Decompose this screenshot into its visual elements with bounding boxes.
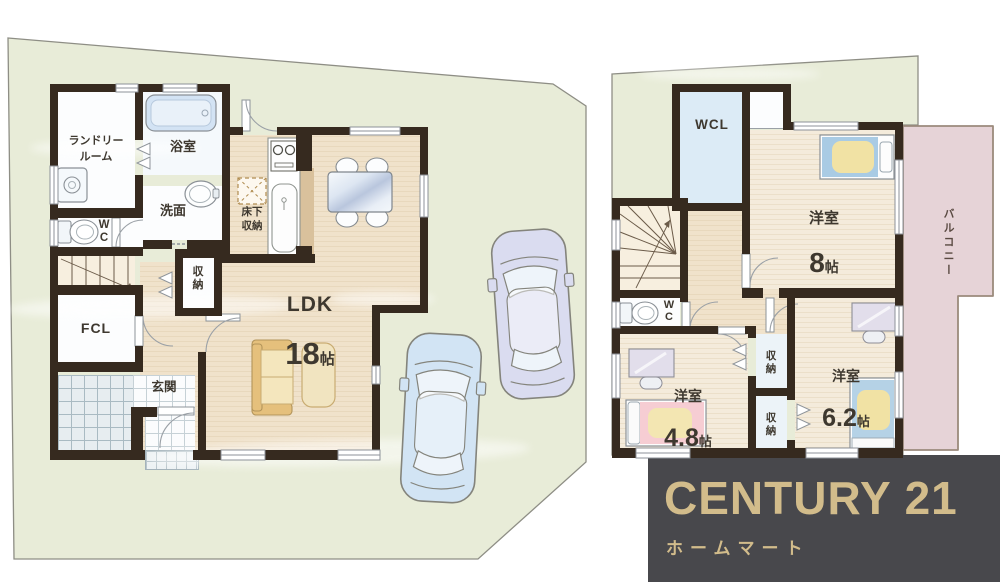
window	[612, 302, 620, 328]
ldk-name: LDK	[262, 292, 358, 318]
label-bath: 浴室	[157, 139, 209, 155]
window	[50, 166, 58, 204]
window	[612, 354, 620, 398]
label-storage-2f-bottom: 収 納	[763, 412, 779, 437]
room48-size: 4.8	[664, 424, 699, 452]
ldk-size: 18	[285, 336, 319, 371]
label-wc-2f: W C	[662, 299, 676, 323]
room62-unit: 帖	[857, 414, 870, 429]
label-wc-1f: W C	[96, 219, 112, 244]
label-storage-2f-top: 収 納	[763, 350, 779, 375]
label-fcl: FCL	[60, 320, 132, 338]
window	[163, 84, 197, 92]
label-laundry: ランドリー ルーム	[57, 134, 135, 166]
window	[50, 220, 58, 246]
window	[895, 160, 903, 234]
ldk-unit: 帖	[320, 351, 335, 368]
label-wcl: WCL	[688, 117, 736, 134]
window	[895, 372, 903, 418]
label-entrance: 玄関	[136, 380, 192, 396]
label-washroom: 洗面	[147, 203, 199, 219]
room8-size: 8	[809, 247, 825, 278]
room8-name: 洋室	[786, 210, 862, 229]
floor-plan-page: CENTURY 21 ホームマート	[0, 0, 1000, 582]
room62-size: 6.2	[822, 404, 857, 432]
window	[420, 175, 428, 217]
label-underfloor-storage: 床下 収納	[234, 206, 270, 233]
label-room62: 洋室 6.2帖	[806, 348, 886, 451]
window	[221, 450, 265, 460]
label-room48: 洋室 4.8帖	[648, 368, 728, 471]
label-room8: 洋室 8帖	[786, 190, 862, 297]
label-ldk: LDK 18帖	[262, 272, 358, 389]
room62-name: 洋室	[806, 368, 886, 386]
window	[372, 366, 380, 384]
window	[794, 122, 858, 130]
window	[612, 220, 620, 250]
room8-unit: 帖	[825, 259, 839, 275]
window	[116, 84, 138, 92]
label-balcony: バルコニー	[936, 198, 954, 288]
window	[338, 450, 380, 460]
window	[350, 127, 400, 135]
room48-unit: 帖	[699, 434, 712, 449]
room48-name: 洋室	[648, 388, 728, 406]
label-storage-1f: 収 納	[190, 266, 206, 292]
window	[895, 306, 903, 336]
